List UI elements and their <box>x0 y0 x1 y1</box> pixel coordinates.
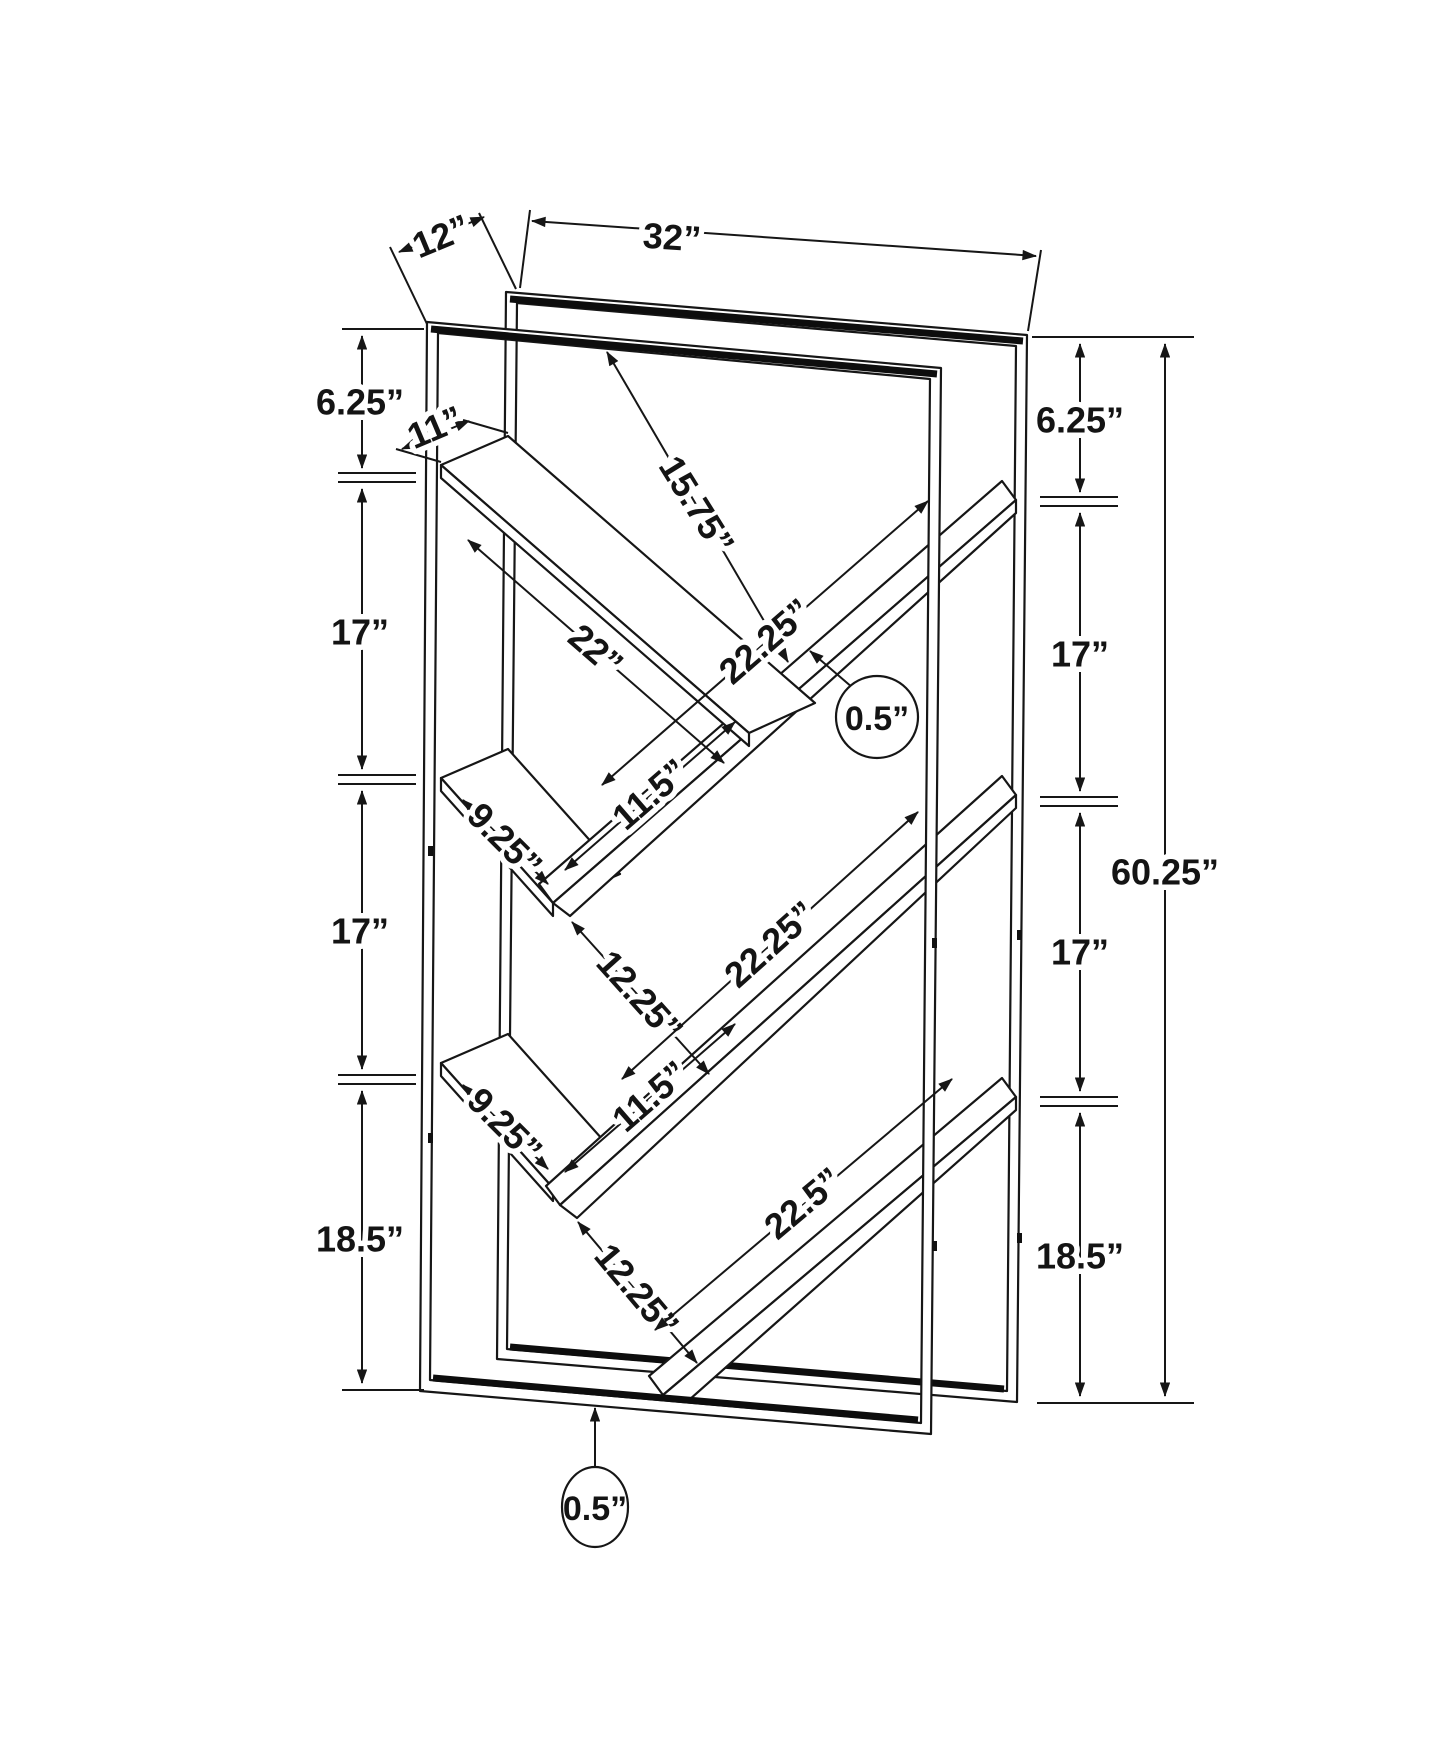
extension-line <box>479 213 516 289</box>
left-dimension-chain: 6.25” 17” 17” 18.5” <box>316 329 424 1390</box>
dim-top-clearance: 15.75” <box>651 448 743 561</box>
joint-mark <box>1017 930 1022 940</box>
joint-mark <box>428 1133 433 1143</box>
extension-line <box>520 210 530 288</box>
shelf-upper-left-top <box>441 436 815 733</box>
dim-left-lower-mid: 17” <box>331 911 389 952</box>
callout-thickness-lower: 0.5” <box>563 1490 627 1528</box>
dim-right-upper-mid: 17” <box>1051 634 1109 675</box>
extension-line <box>463 420 508 433</box>
dim-left-upper-mid: 17” <box>331 612 389 653</box>
shelf-bottom-right-face <box>663 1097 1016 1408</box>
dim-gap-lower: 12.25” <box>586 1235 687 1344</box>
dim-width: 32” <box>642 215 703 260</box>
dimension-diagram-page: 6.25” 17” 17” 18.5” 6.25” 17” 17” 18.5” … <box>0 0 1445 1754</box>
dim-line-width <box>532 221 1036 256</box>
callout-thickness-upper: 0.5” <box>845 700 909 738</box>
dim-right-top: 6.25” <box>1036 400 1124 441</box>
joint-mark <box>932 1241 937 1251</box>
dim-depth: 12” <box>406 206 475 266</box>
dim-left-bottom: 18.5” <box>316 1219 404 1260</box>
joint-mark <box>932 938 937 948</box>
dimensions: 6.25” 17” 17” 18.5” 6.25” 17” 17” 18.5” … <box>316 206 1219 1547</box>
right-dimension-chain: 6.25” 17” 17” 18.5” 60.25” <box>1032 337 1219 1403</box>
extension-line <box>1028 250 1041 331</box>
dim-left-top: 6.25” <box>316 382 404 423</box>
bookcase-dimension-drawing: 6.25” 17” 17” 18.5” 6.25” 17” 17” 18.5” … <box>0 0 1445 1754</box>
shelf-bottom-right-top <box>649 1078 1016 1395</box>
dim-right-lower-mid: 17” <box>1051 932 1109 973</box>
dim-shelf-depth: 11” <box>401 397 469 457</box>
dim-right-bottom: 18.5” <box>1036 1236 1124 1277</box>
back-frame-top-band <box>510 299 1023 341</box>
joint-mark <box>428 846 433 856</box>
joint-mark <box>1017 1233 1022 1243</box>
dim-height-total: 60.25” <box>1111 852 1219 893</box>
dim-gap-upper: 12.25” <box>589 942 692 1050</box>
